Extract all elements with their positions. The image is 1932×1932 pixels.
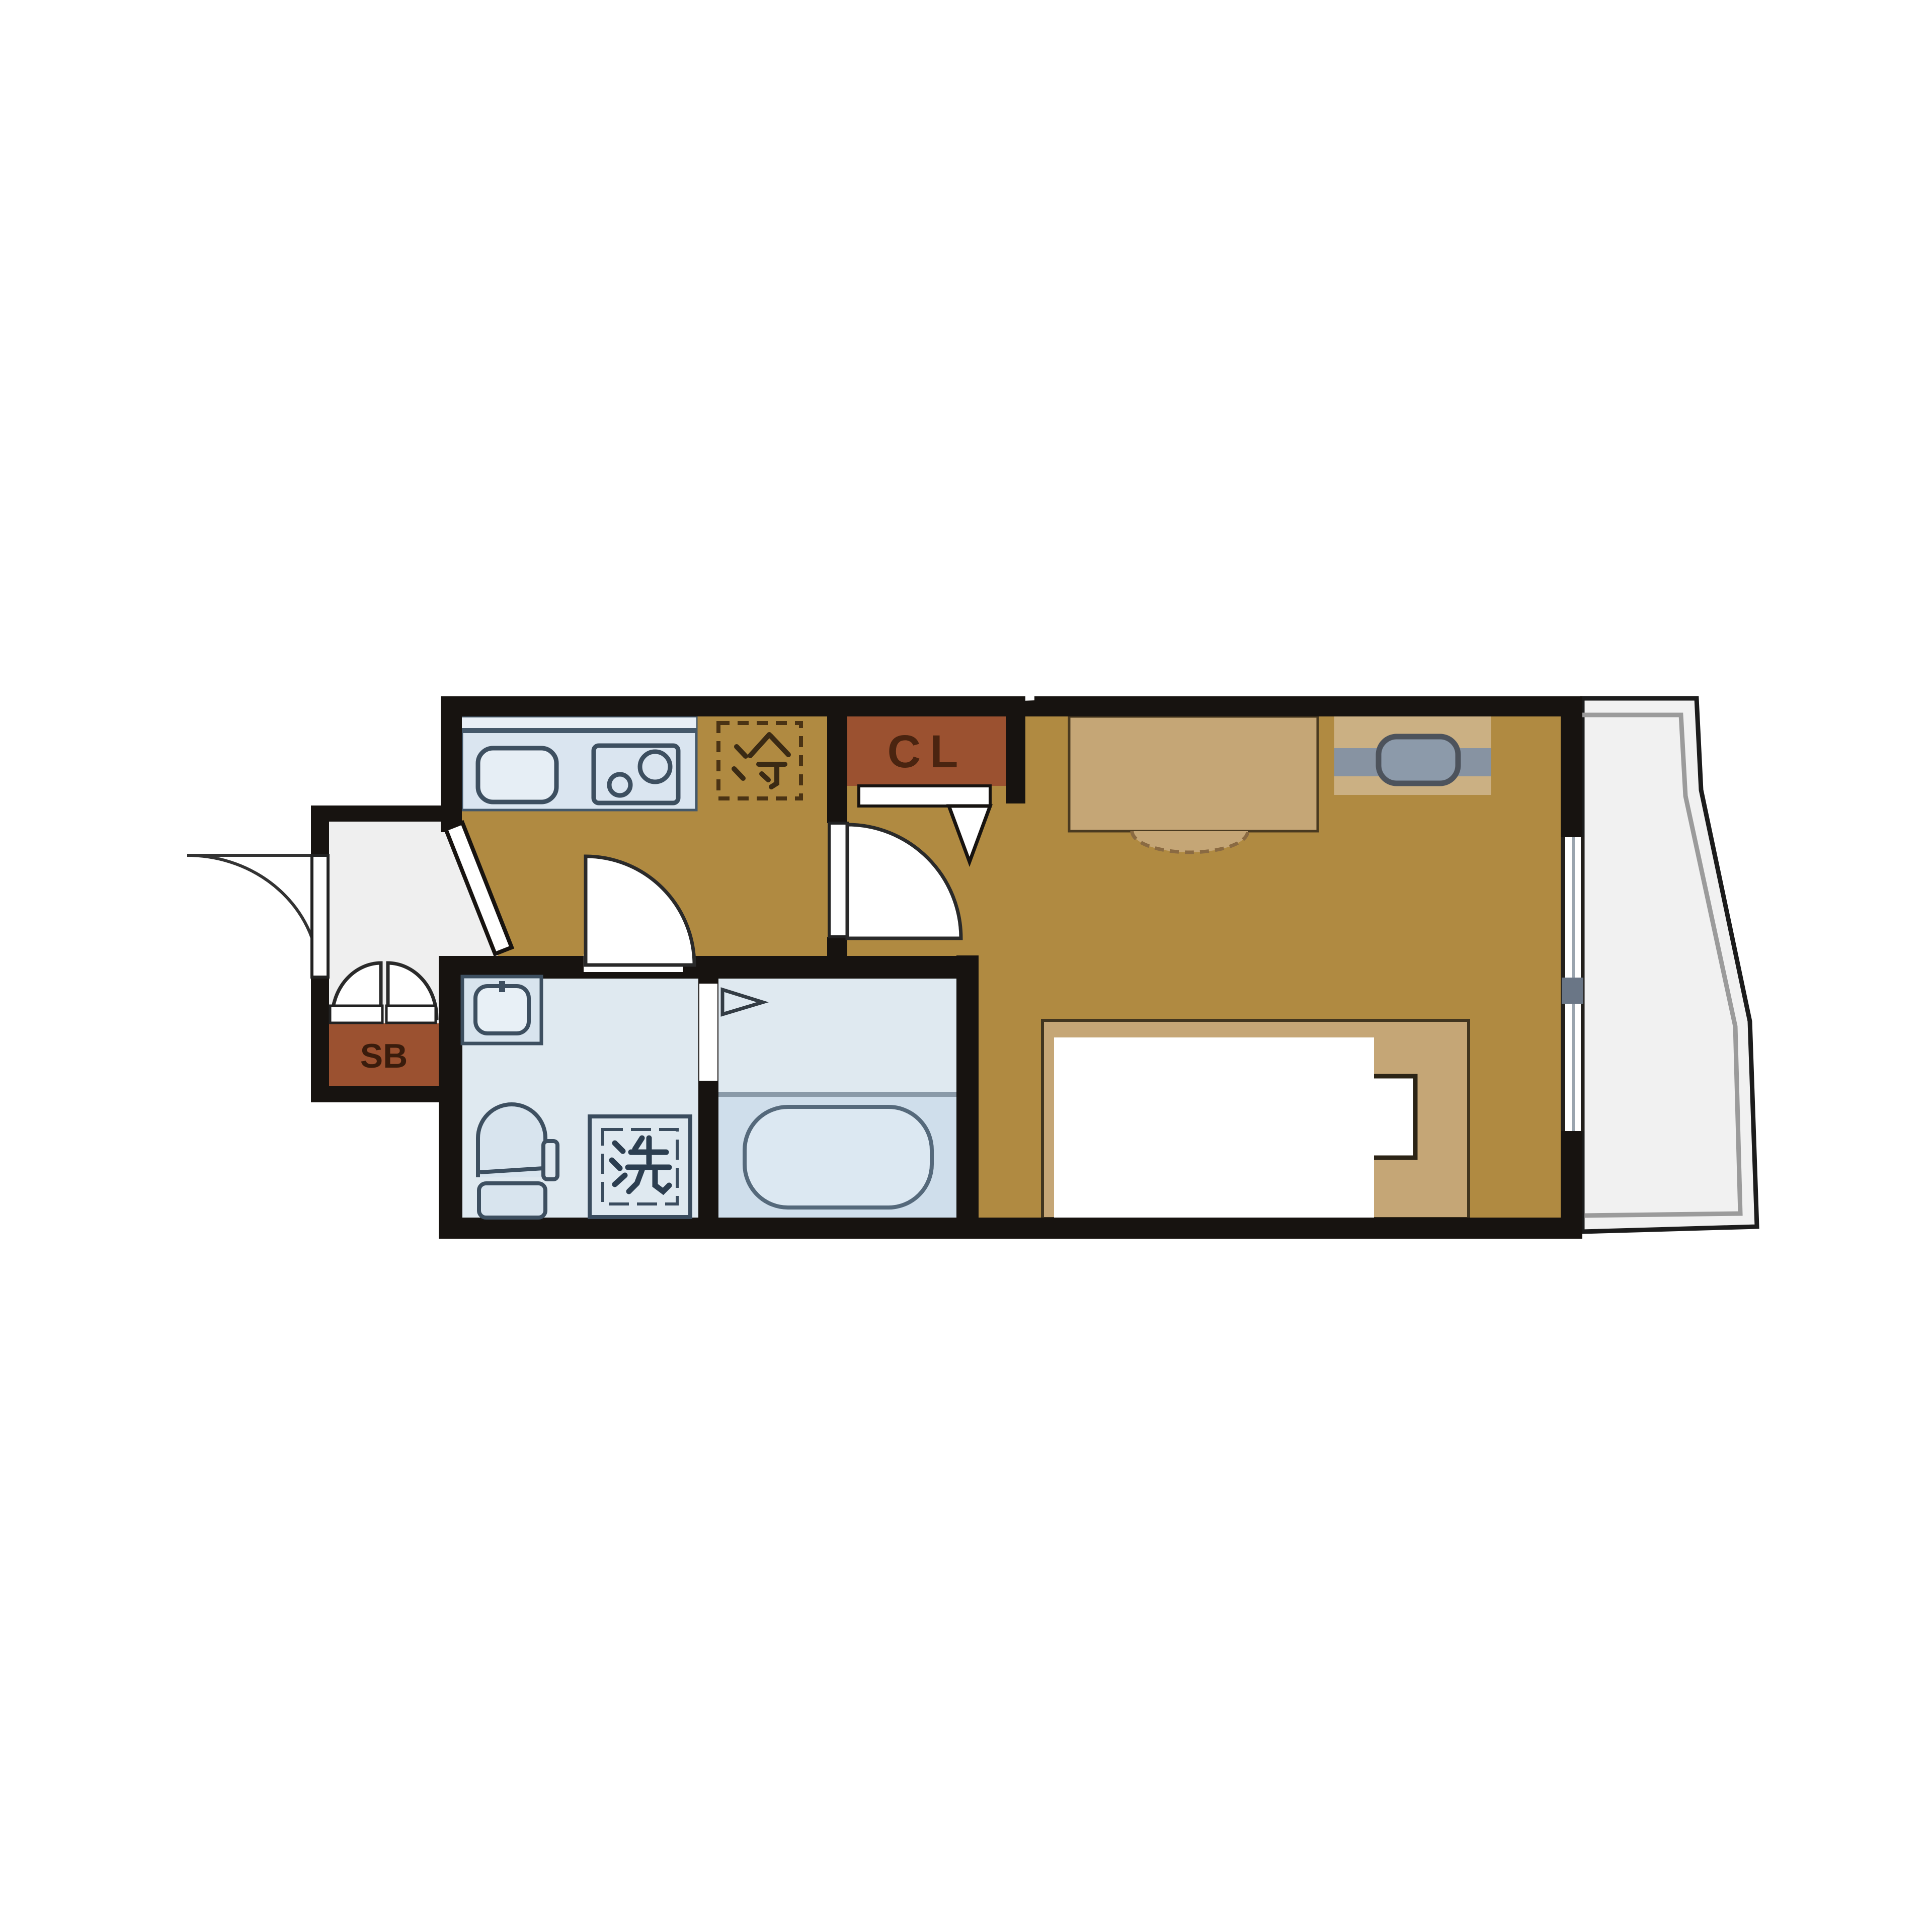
svg-text:CL: CL: [888, 726, 968, 777]
svg-text:SB: SB: [360, 1037, 408, 1075]
